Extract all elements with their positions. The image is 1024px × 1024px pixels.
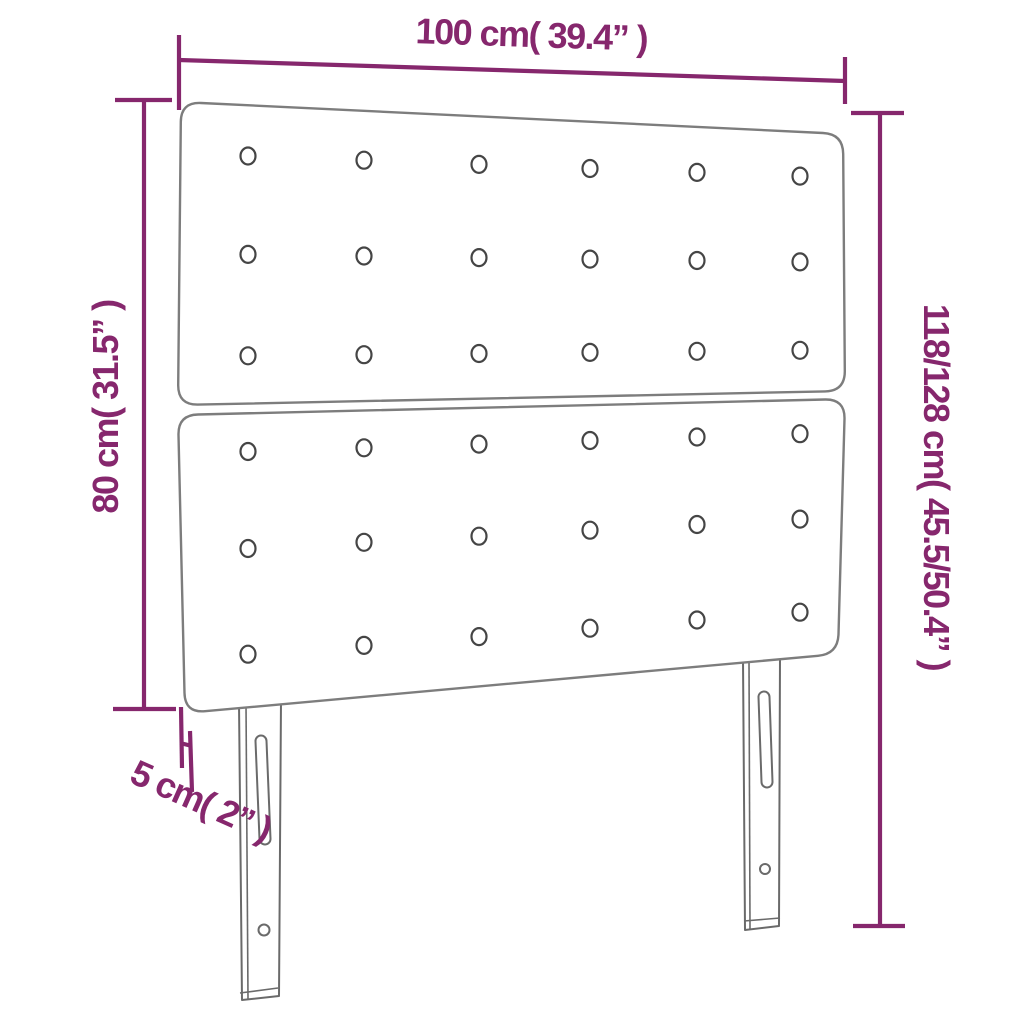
tufting-button — [241, 443, 256, 460]
tufting-button — [690, 343, 705, 360]
tufting-button — [357, 152, 372, 169]
tufting-button — [793, 342, 808, 359]
dimension-total-height: 118/128 cm( 45.5/50.4” ) — [851, 113, 957, 926]
dimension-headboard-height: 80 cm( 31.5” ) — [85, 100, 176, 709]
width-dimension-label: 100 cm( 39.4” ) — [415, 10, 648, 59]
tufting-button — [241, 246, 256, 263]
tufting-button — [472, 436, 487, 453]
total-height-label: 118/128 cm( 45.5/50.4” ) — [916, 304, 957, 671]
tufting-button — [793, 425, 808, 442]
tufting-button — [583, 344, 598, 361]
tufting-button — [241, 540, 256, 557]
tufting-button — [690, 429, 705, 446]
tufting-button — [472, 249, 487, 266]
tufting-button — [241, 646, 256, 663]
headboard-dimension-diagram: 100 cm( 39.4” ) 80 cm( 31.5” ) 118/128 c… — [0, 0, 1024, 1024]
tufting-button — [690, 164, 705, 181]
dimension-width: 100 cm( 39.4” ) — [179, 10, 845, 110]
right-leg-bolt-hole — [760, 864, 770, 874]
tufting-button — [583, 620, 598, 637]
tufting-button — [583, 432, 598, 449]
tufting-button — [793, 253, 808, 270]
right-leg-slot-inner — [764, 697, 767, 782]
tufting-button — [241, 347, 256, 364]
tufting-button — [583, 160, 598, 177]
headboard-height-label: 80 cm( 31.5” ) — [85, 300, 126, 514]
tufting-button — [472, 528, 487, 545]
headboard-right-leg — [743, 656, 780, 930]
tufting-button — [357, 346, 372, 363]
tufting-button — [357, 637, 372, 654]
tufting-button — [793, 604, 808, 621]
right-leg-side-edge-line — [749, 660, 750, 929]
tufting-button — [357, 534, 372, 551]
tufting-button — [472, 628, 487, 645]
tufting-button — [793, 511, 808, 528]
tufting-button — [241, 148, 256, 165]
thickness-connector-line — [180, 743, 192, 746]
tufting-button — [690, 252, 705, 269]
tufting-button — [357, 439, 372, 456]
tufting-button — [793, 168, 808, 185]
tufting-button — [472, 156, 487, 173]
diagram-canvas: 100 cm( 39.4” ) 80 cm( 31.5” ) 118/128 c… — [0, 0, 1024, 1024]
tufting-button — [583, 522, 598, 539]
tufting-button — [690, 516, 705, 533]
tufting-button — [583, 251, 598, 268]
tufting-button — [690, 612, 705, 629]
tufting-button — [472, 345, 487, 362]
thickness-tick-back — [181, 707, 182, 768]
headboard-upper-panel — [178, 103, 845, 405]
left-leg-bolt-hole — [259, 925, 270, 936]
width-dimension-line — [179, 60, 845, 81]
headboard-left-leg — [239, 700, 281, 1000]
tufting-button — [357, 248, 372, 265]
headboard — [178, 103, 845, 1000]
